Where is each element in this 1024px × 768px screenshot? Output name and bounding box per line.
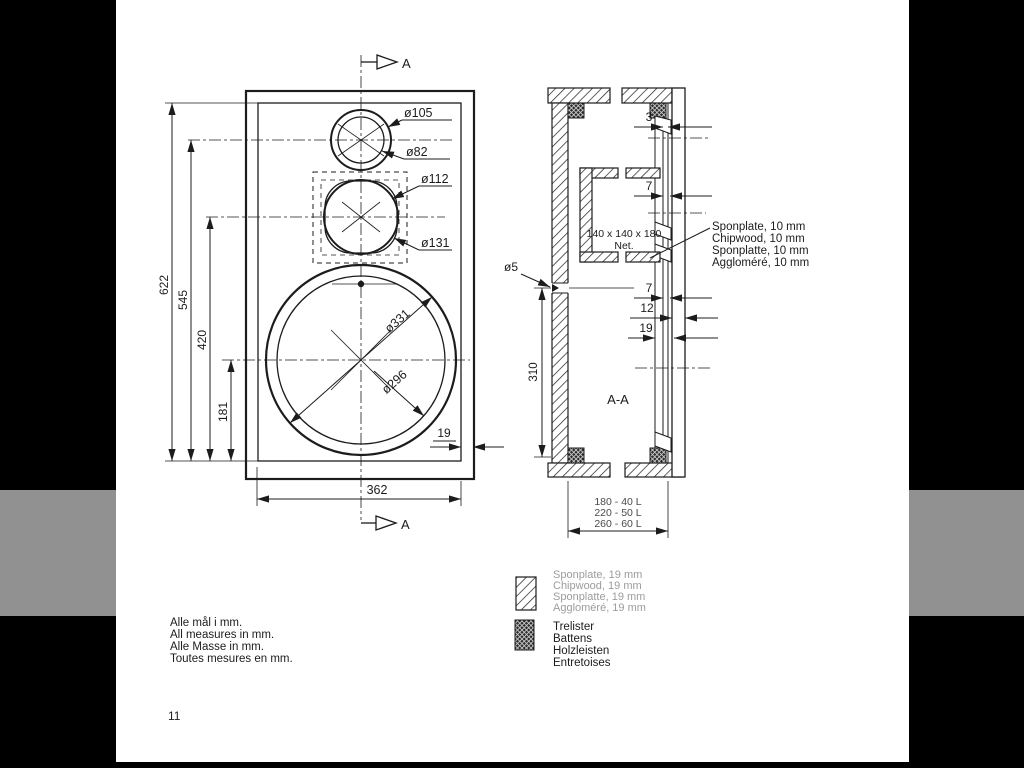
section-marker-top: A (361, 55, 411, 71)
dim-front-gap-label: 3 (646, 110, 653, 124)
batten-bottom-left (568, 448, 584, 463)
midbox-size-label: 140 x 140 x 180 (587, 228, 662, 240)
section-marker-bottom-label: A (401, 517, 410, 532)
midrange-cutout (206, 172, 445, 263)
dim-width-label: 362 (367, 483, 388, 497)
width-dimension: 362 (257, 467, 461, 506)
section-title: A-A (607, 392, 629, 407)
front-frame (672, 88, 685, 477)
height-dimensions: 622 545 420 181 (157, 103, 260, 461)
wall-thickness-dim: 19 (430, 426, 504, 447)
tweeter-inner-dim: ø82 (382, 145, 450, 159)
section-view: 140 x 140 x 180 Net. 3 7 7 1 (504, 88, 809, 538)
batten-top-left (568, 103, 584, 118)
panel-hatch-swatch (516, 577, 536, 610)
dim-height-total: 622 (157, 275, 171, 295)
midrange-frame-label: ø131 (421, 236, 450, 250)
panel-legend-4: Aggloméré, 19 mm (553, 602, 646, 614)
dim-wall-label: 19 (437, 426, 451, 440)
woofer-cutout (222, 265, 470, 455)
volume-dimension: 180 - 40 L 220 - 50 L 260 - 60 L (568, 481, 668, 538)
tweeter-inner-label: ø82 (406, 145, 428, 159)
top-wall-left (548, 88, 610, 103)
midrange-outer-dim: ø112 (392, 172, 452, 199)
note-line-1: Sponplate, 10 mm (712, 221, 805, 233)
midrange-outer-label: ø112 (421, 172, 449, 186)
top-wall-right (622, 88, 672, 103)
midbox-net-label: Net. (614, 240, 633, 252)
tweeter-outer-label: ø105 (404, 106, 433, 120)
footnote-2: All measures in mm. (170, 629, 274, 641)
batten-legend-2: Battens (553, 633, 592, 645)
woofer-inner-label: ø296 (379, 367, 410, 396)
dim-board-lower-label: 7 (646, 281, 653, 295)
section-marker-bottom: A (361, 516, 410, 532)
woofer-outer-label: ø331 (382, 306, 413, 335)
dim-height-mid: 420 (195, 330, 209, 350)
frame-wedge-top (655, 116, 671, 134)
note-line-4: Aggloméré, 10 mm (712, 257, 809, 269)
dim-section-wall-label: 19 (639, 321, 653, 335)
dim-depth-inner-label: 310 (528, 362, 540, 381)
legend: Sponplate, 19 mm Chipwood, 19 mm Sponpla… (515, 569, 646, 669)
dim-port-label: ø5 (504, 260, 518, 274)
note-line-3: Sponplatte, 10 mm (712, 245, 809, 257)
front-view: A A ø105 ø82 (157, 55, 504, 532)
footnote-4: Toutes mesures en mm. (170, 653, 293, 665)
note-line-2: Chipwood, 10 mm (712, 233, 805, 245)
dim-board-upper-label: 7 (646, 179, 653, 193)
batten-legend-3: Holzleisten (553, 645, 609, 657)
woofer-inner-dim: ø296 (374, 367, 424, 416)
tweeter-outer-dim: ø105 (388, 106, 452, 127)
scanned-page: Pre ss! (0, 0, 1024, 768)
footnote-3: Alle Masse in mm. (170, 641, 264, 653)
page-number: 11 (168, 709, 181, 723)
inner-depth-dim: 310 (528, 288, 551, 457)
midrange-frame-dim: ø131 (394, 236, 452, 250)
footnote-1: Alle mål i mm. (170, 617, 242, 629)
port-hole-dim: ø5 (504, 260, 634, 293)
volume-row-3: 260 - 60 L (594, 518, 641, 530)
dim-height-tweeter: 545 (176, 290, 190, 310)
measure-footnotes: Alle mål i mm. All measures in mm. Alle … (170, 617, 293, 665)
section-marker-top-label: A (402, 56, 411, 71)
bottom-wall-left (548, 463, 610, 477)
batten-legend-1: Trelister (553, 621, 594, 633)
dim-height-woofer: 181 (216, 402, 230, 422)
speaker-construction-drawing: A A ø105 ø82 (0, 0, 1024, 768)
batten-legend-4: Entretoises (553, 657, 611, 669)
batten-top-right (650, 103, 666, 118)
batten-swatch (515, 620, 534, 650)
batten-bottom-right (650, 448, 666, 463)
dim-frame-label: 12 (640, 301, 654, 315)
